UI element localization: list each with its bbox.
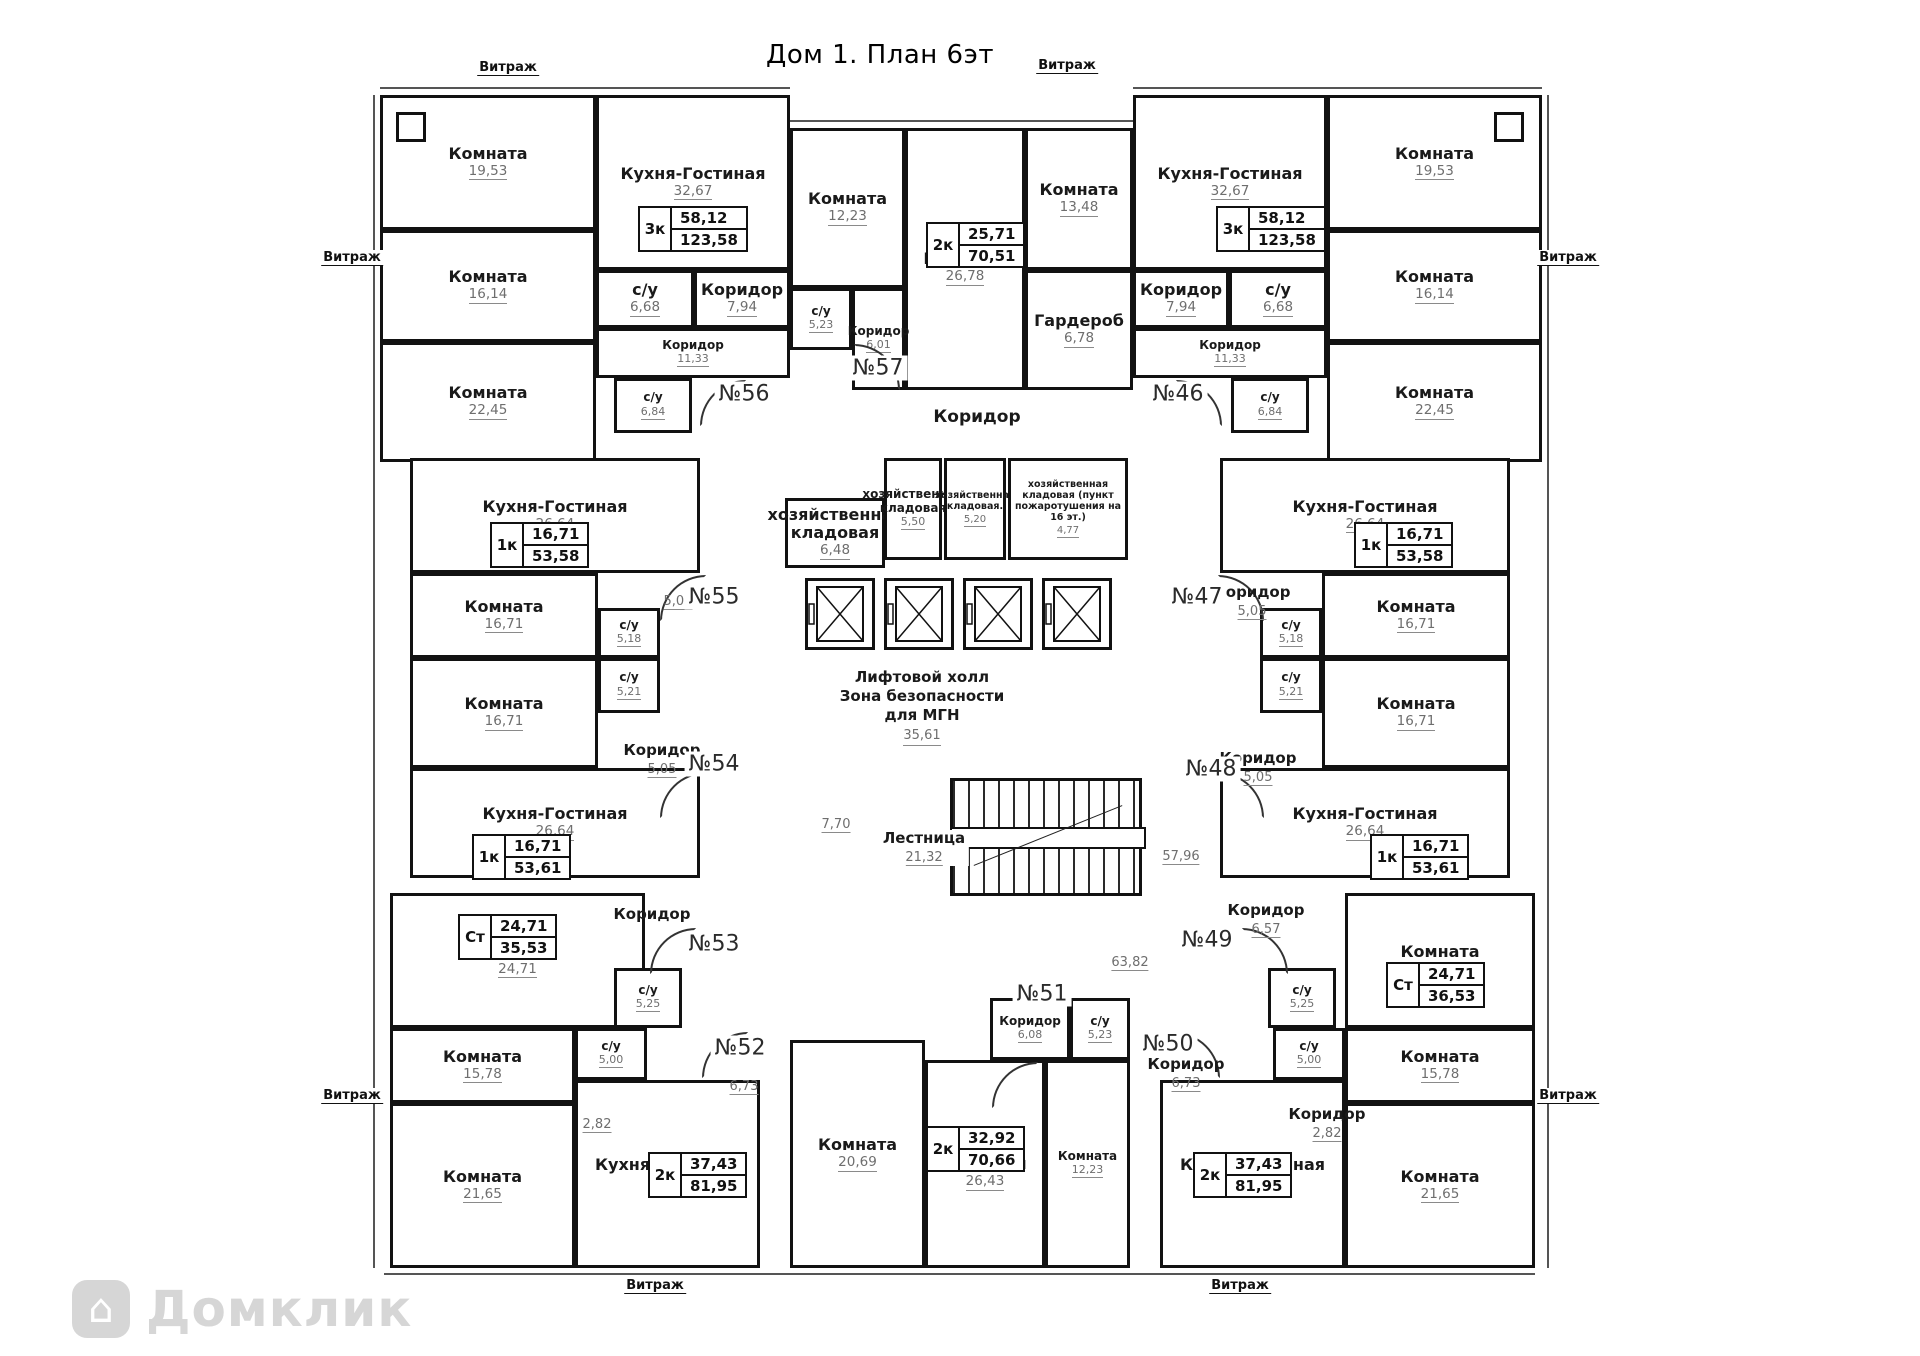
vitrage-label: Витраж — [477, 60, 539, 76]
apartment-type: 2к — [1195, 1154, 1227, 1196]
stair-landing — [950, 827, 1146, 849]
apartment-living-area: 58,12 — [672, 208, 746, 230]
room-name: с/у — [617, 619, 640, 632]
apartment-areas: 24,7136,53 — [1420, 964, 1483, 1006]
room-name: Комната — [1393, 268, 1476, 286]
room-area: 5,18 — [617, 633, 642, 647]
apartment-total-area: 123,58 — [672, 230, 746, 250]
room-area: 22,45 — [469, 403, 508, 420]
room: с/у5,21 — [598, 658, 660, 713]
apartment-type: Ст — [460, 916, 492, 958]
apartment-type: 1к — [1356, 524, 1388, 566]
room: Комната16,71 — [1322, 658, 1510, 768]
room: Коридор7,94 — [694, 270, 790, 328]
room-area: 5,50 — [901, 516, 926, 530]
apartment-type: 1к — [492, 524, 524, 566]
apartment-total-area: 53,58 — [1388, 546, 1451, 566]
apartment-areas: 25,7170,51 — [960, 224, 1023, 266]
elevator-icon — [884, 578, 954, 650]
room-name: с/у — [1297, 1040, 1320, 1053]
room-name: с/у — [630, 281, 660, 299]
unit-number: №51 — [1013, 982, 1072, 1007]
room-name: Комната — [806, 190, 889, 208]
corridor-label: 63,82 — [1107, 952, 1152, 971]
room: с/у5,23 — [790, 288, 852, 350]
lift-hall-area: 35,61 — [903, 728, 940, 745]
apartment-areas: 16,7153,61 — [1404, 836, 1467, 878]
apartment-living-area: 24,71 — [1420, 964, 1483, 986]
corridor-label-text: Коридор — [1289, 1106, 1366, 1123]
apartment-type: 2к — [928, 1128, 960, 1170]
room-area: 6,08 — [1018, 1029, 1043, 1043]
apartment-living-area: 16,71 — [524, 524, 587, 546]
room-name: Кухня-Гостиная — [480, 805, 629, 823]
room: Комната20,69 — [790, 1040, 925, 1268]
room: Коридор11,33 — [1133, 328, 1327, 378]
room: с/у6,84 — [614, 378, 692, 433]
elevator-icon — [805, 578, 875, 650]
room-name: Комната — [816, 1136, 899, 1154]
room-area: 6,68 — [1263, 300, 1293, 317]
room-name: Комната — [446, 268, 529, 286]
apartment-living-area: 37,43 — [1227, 1154, 1290, 1176]
watermark-text: Домклик — [146, 1280, 412, 1338]
room-area: 26,43 — [966, 1174, 1005, 1191]
apartment-info-table: 2к25,7170,51 — [926, 222, 1025, 268]
apartment-total-area: 123,58 — [1250, 230, 1324, 250]
room-name: Комната — [1393, 145, 1476, 163]
apartment-areas: 32,9270,66 — [960, 1128, 1023, 1170]
room-area: 19,53 — [1415, 164, 1454, 181]
apartment-areas: 16,7153,61 — [506, 836, 569, 878]
corridor-label-area: 6,73 — [1172, 1077, 1201, 1092]
unit-number: №49 — [1178, 928, 1237, 953]
room-area: 16,71 — [1397, 714, 1436, 731]
corridor-label: 2,82 — [583, 1114, 612, 1133]
room-area: 22,45 — [1415, 403, 1454, 420]
room: с/у5,00 — [1273, 1028, 1345, 1080]
vitrage-label: Витраж — [1537, 250, 1599, 266]
corridor-label-area: 57,96 — [1162, 850, 1199, 865]
apartment-total-area: 53,58 — [524, 546, 587, 566]
corridor-label: Лестница21,32 — [879, 830, 969, 866]
corridor-label-area: 2,82 — [583, 1118, 612, 1133]
apartment-info-table: 2к37,4381,95 — [648, 1152, 747, 1198]
apartment-total-area: 35,53 — [492, 938, 555, 958]
room-name: с/у — [641, 391, 664, 404]
unit-number: №52 — [711, 1036, 770, 1061]
room: с/у5,00 — [575, 1028, 647, 1080]
apartment-type: 2к — [928, 224, 960, 266]
apartment-info-table: 3к58,12123,58 — [1216, 206, 1326, 252]
room-area: 16,71 — [485, 617, 524, 634]
apartment-living-area: 16,71 — [1388, 524, 1451, 546]
vitrage-label: Витраж — [1537, 1088, 1599, 1104]
room: Комната15,78 — [390, 1028, 575, 1103]
room-name: Кухня-Гостиная — [618, 165, 767, 183]
room-area: 6,84 — [641, 406, 666, 420]
apartment-type: 1к — [1372, 836, 1404, 878]
apartment-total-area: 53,61 — [1404, 858, 1467, 878]
apartment-type: 2к — [650, 1154, 682, 1196]
room-area: 6,84 — [1258, 406, 1283, 420]
apartment-living-area: 37,43 — [682, 1154, 745, 1176]
apartment-type: 3к — [1218, 208, 1250, 250]
room-name: Коридор — [660, 339, 726, 352]
apartment-total-area: 70,66 — [960, 1150, 1023, 1170]
apartment-info-table: 1к16,7153,58 — [1354, 522, 1453, 568]
room-area: 12,23 — [828, 209, 867, 226]
room: Комната13,48 — [1025, 128, 1133, 270]
apartment-info-table: 1к16,7153,61 — [1370, 834, 1469, 880]
room-name: с/у — [1258, 391, 1281, 404]
room: с/у5,18 — [598, 608, 660, 658]
floor-plan: Дом 1. План 6эт Лифтовой холл Зона безоп… — [0, 0, 1920, 1356]
corridor-label-text: Коридор — [614, 906, 691, 923]
apartment-living-area: 58,12 — [1250, 208, 1324, 230]
room-name: с/у — [1088, 1015, 1111, 1028]
unit-number: №54 — [685, 752, 744, 777]
corridor-label: Коридор6,57 — [1228, 902, 1305, 938]
room-name: с/у — [636, 984, 659, 997]
room-area: 6,78 — [1064, 331, 1094, 348]
room-name: Комната — [441, 1168, 524, 1186]
corridor-label-area: 6,57 — [1252, 923, 1281, 938]
corridor-label-text: Лестница — [883, 830, 965, 847]
unit-number: №55 — [685, 585, 744, 610]
apartment-info-table: 2к32,9270,66 — [926, 1126, 1025, 1172]
room-area: 19,53 — [469, 164, 508, 181]
window-column-icon — [1494, 112, 1524, 142]
apartment-type: 1к — [474, 836, 506, 878]
corridor-label-text: Коридор — [1148, 1056, 1225, 1073]
room: Комната16,71 — [410, 658, 598, 768]
room: Комната22,45 — [380, 342, 596, 462]
room-area: 5,20 — [964, 514, 986, 527]
room-name: Коридор — [1197, 339, 1263, 352]
unit-number: №53 — [685, 932, 744, 957]
room-area: 21,65 — [463, 1187, 502, 1204]
room-name: Комната — [441, 1048, 524, 1066]
room-area: 26,78 — [946, 269, 985, 286]
room-area: 16,71 — [485, 714, 524, 731]
apartment-total-area: 53,61 — [506, 858, 569, 878]
room-area: 6,68 — [630, 300, 660, 317]
apartment-info-table: 1к16,7153,58 — [490, 522, 589, 568]
room-area: 6,48 — [820, 543, 850, 560]
room-area: 16,14 — [469, 287, 508, 304]
apartment-living-area: 25,71 — [960, 224, 1023, 246]
room-name: Кухня-Гостиная — [1290, 805, 1439, 823]
room: Комната16,71 — [1322, 573, 1510, 658]
vitrage-label: Витраж — [624, 1278, 686, 1294]
glazing-line — [380, 87, 790, 89]
apartment-living-area: 16,71 — [1404, 836, 1467, 858]
corridor-label: 57,96 — [1162, 846, 1199, 865]
room: Комната12,23 — [790, 128, 905, 288]
room-name: Коридор — [1138, 281, 1224, 299]
room-name: Комната — [1056, 1150, 1119, 1163]
corridor-label: Коридор — [933, 408, 1020, 427]
room-name: хозяйственная кладовая. — [933, 491, 1017, 513]
staircase-icon — [950, 778, 1142, 896]
room-name: Комната — [462, 695, 545, 713]
room: Гардероб6,78 — [1025, 270, 1133, 390]
watermark: ⌂ Домклик — [72, 1280, 412, 1338]
room-name: Кухня-Гостиная — [480, 498, 629, 516]
corridor-label-area: 6,73 — [730, 1080, 759, 1095]
room-area: 5,21 — [617, 686, 642, 700]
room: с/у6,68 — [596, 270, 694, 328]
window-column-icon — [396, 112, 426, 142]
room: Комната21,65 — [1345, 1103, 1535, 1268]
lift-hall-line: Лифтовой холл — [832, 668, 1012, 687]
room-area: 21,65 — [1421, 1187, 1460, 1204]
apartment-total-area: 70,51 — [960, 246, 1023, 266]
apartment-areas: 16,7153,58 — [1388, 524, 1451, 566]
watermark-logo-icon: ⌂ — [72, 1280, 130, 1338]
apartment-info-table: 2к37,4381,95 — [1193, 1152, 1292, 1198]
room: с/у5,25 — [614, 968, 682, 1028]
apartment-info-table: 1к16,7153,61 — [472, 834, 571, 880]
corridor-label: Коридор — [614, 906, 691, 923]
apartment-areas: 58,12123,58 — [1250, 208, 1324, 250]
room-area: 15,78 — [1421, 1067, 1460, 1084]
room-area: 5,21 — [1279, 686, 1304, 700]
unit-number: №47 — [1168, 585, 1227, 610]
room: с/у6,68 — [1229, 270, 1327, 328]
apartment-total-area: 81,95 — [682, 1176, 745, 1196]
room: с/у6,84 — [1231, 378, 1309, 433]
room-name: Комната — [1037, 181, 1120, 199]
room: Коридор11,33 — [596, 328, 790, 378]
room: Комната22,45 — [1327, 342, 1542, 462]
room-area: 16,14 — [1415, 287, 1454, 304]
room: хозяйственная кладовая.5,20 — [944, 458, 1006, 560]
room-area: 15,78 — [463, 1067, 502, 1084]
plan-title: Дом 1. План 6эт — [560, 40, 1200, 70]
room: Комната16,14 — [1327, 230, 1542, 342]
room-name: Комната — [1393, 384, 1476, 402]
apartment-areas: 58,12123,58 — [672, 208, 746, 250]
corridor-label: 7,70 — [822, 814, 851, 833]
lift-hall-line: Зона безопасности — [832, 687, 1012, 706]
corridor-label: Коридор2,82 — [1289, 1106, 1366, 1142]
corridor-label-area: 5,05 — [1238, 605, 1267, 620]
room-area: 11,33 — [1214, 353, 1246, 367]
corridor-label-area: 21,32 — [905, 851, 942, 866]
room-name: с/у — [617, 671, 640, 684]
room-area: 32,67 — [674, 184, 713, 201]
corridor-label-area: 5,05 — [648, 763, 677, 778]
room-name: с/у — [1290, 984, 1313, 997]
apartment-total-area: 36,53 — [1420, 986, 1483, 1006]
glazing-line — [384, 1273, 1535, 1275]
corridor-label-area: 5,05 — [1244, 771, 1273, 786]
apartment-info-table: Ст24,7136,53 — [1386, 962, 1485, 1008]
room-area: 7,94 — [1166, 300, 1196, 317]
room-area: 5,23 — [1088, 1029, 1113, 1043]
room: Комната16,14 — [380, 230, 596, 342]
room-area: 16,71 — [1397, 617, 1436, 634]
room-area: 7,94 — [727, 300, 757, 317]
room-name: Комната — [446, 384, 529, 402]
vitrage-label: Витраж — [1036, 58, 1098, 74]
room-area: 11,33 — [677, 353, 709, 367]
room-name: Кухня-Гостиная — [1290, 498, 1439, 516]
room-area: 13,48 — [1060, 200, 1099, 217]
room-name: хозяйственная кладовая (пункт пожаротуше… — [1011, 480, 1125, 524]
room-name: Коридор — [997, 1015, 1063, 1028]
elevator-icon — [1042, 578, 1112, 650]
room-name: с/у — [1263, 281, 1293, 299]
unit-number: №48 — [1182, 757, 1241, 782]
room-name: Комната — [1374, 695, 1457, 713]
elevator-icon — [963, 578, 1033, 650]
apartment-info-table: 3к58,12123,58 — [638, 206, 748, 252]
room-area: 20,69 — [838, 1155, 877, 1172]
room-name: с/у — [1279, 619, 1302, 632]
apartment-areas: 37,4381,95 — [682, 1154, 745, 1196]
room: Комната16,71 — [410, 573, 598, 658]
room-name: Гардероб — [1032, 312, 1126, 330]
apartment-living-area: 32,92 — [960, 1128, 1023, 1150]
room-area: 5,23 — [809, 319, 834, 333]
room-area: 5,18 — [1279, 633, 1304, 647]
vitrage-label: Витраж — [1209, 1278, 1271, 1294]
room: с/у5,25 — [1268, 968, 1336, 1028]
lift-hall-label: Лифтовой холл Зона безопасности для МГН … — [832, 668, 1012, 746]
corridor-label: Коридор6,73 — [1148, 1056, 1225, 1092]
unit-number: №57 — [849, 356, 908, 381]
vitrage-label: Витраж — [321, 250, 383, 266]
apartment-total-area: 81,95 — [1227, 1176, 1290, 1196]
apartment-living-area: 16,71 — [506, 836, 569, 858]
room-area: 24,71 — [498, 962, 537, 979]
room-name: с/у — [599, 1040, 622, 1053]
room-area: 5,25 — [636, 998, 661, 1012]
room-name: с/у — [1279, 671, 1302, 684]
apartment-info-table: Ст24,7135,53 — [458, 914, 557, 960]
room: с/у5,21 — [1260, 658, 1322, 713]
room-name: Кухня-Гостиная — [1155, 165, 1304, 183]
room-name: Комната — [1398, 1048, 1481, 1066]
apartment-areas: 37,4381,95 — [1227, 1154, 1290, 1196]
vitrage-label: Витраж — [321, 1088, 383, 1104]
room-name: Комната — [446, 145, 529, 163]
apartment-areas: 24,7135,53 — [492, 916, 555, 958]
unit-number: №46 — [1149, 382, 1208, 407]
apartment-type: 3к — [640, 208, 672, 250]
room-area: 5,00 — [1297, 1054, 1322, 1068]
room-name: Коридор — [699, 281, 785, 299]
apartment-living-area: 24,71 — [492, 916, 555, 938]
unit-number: №50 — [1139, 1032, 1198, 1057]
room-name: Коридор — [846, 325, 912, 338]
room-area: 5,00 — [599, 1054, 624, 1068]
corridor-label-area: 63,82 — [1111, 956, 1148, 971]
room: Комната15,78 — [1345, 1028, 1535, 1103]
room-area: 5,25 — [1290, 998, 1315, 1012]
unit-number: №56 — [715, 382, 774, 407]
apartment-type: Ст — [1388, 964, 1420, 1006]
room-name: с/у — [809, 305, 832, 318]
room-area: 12,23 — [1072, 1164, 1104, 1178]
room-name: Комната — [1398, 943, 1481, 961]
room: Коридор6,08 — [990, 998, 1070, 1060]
corridor-label-area: 7,70 — [822, 818, 851, 833]
room: с/у5,23 — [1070, 998, 1130, 1060]
room: Комната12,23 — [1045, 1060, 1130, 1268]
corridor-label-area: 2,82 — [1313, 1127, 1342, 1142]
room-area: 4,77 — [1057, 525, 1079, 538]
glazing-line — [1133, 87, 1542, 89]
room-name: Комната — [1398, 1168, 1481, 1186]
glazing-line — [790, 120, 1133, 122]
lift-hall-line: для МГН — [832, 706, 1012, 725]
room-name: Комната — [1374, 598, 1457, 616]
room: Коридор7,94 — [1133, 270, 1229, 328]
corridor-label: 6,73 — [730, 1076, 759, 1095]
apartment-areas: 16,7153,58 — [524, 524, 587, 566]
room-area: 32,67 — [1211, 184, 1250, 201]
room: хозяйственная кладовая (пункт пожаротуше… — [1008, 458, 1128, 560]
room-name: Комната — [462, 598, 545, 616]
room: Комната21,65 — [390, 1103, 575, 1268]
corridor-label-text: Коридор — [933, 408, 1020, 427]
corridor-label-text: Коридор — [1228, 902, 1305, 919]
